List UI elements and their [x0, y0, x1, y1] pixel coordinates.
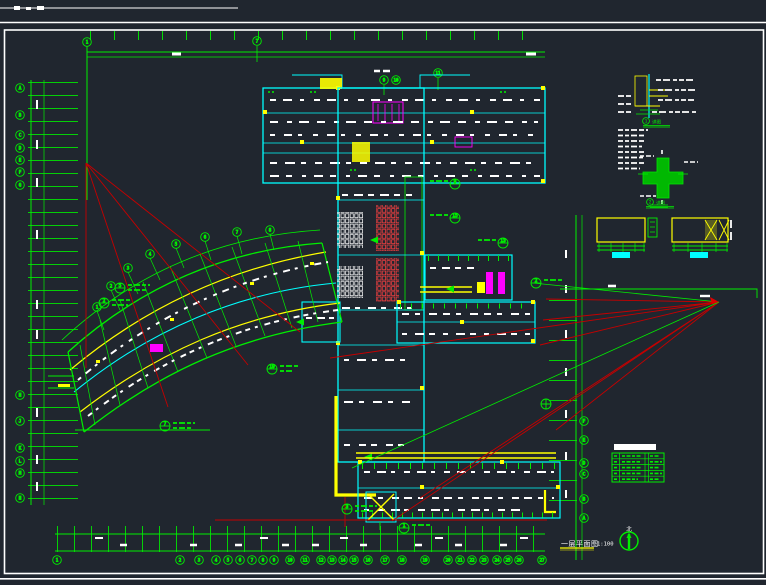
- svg-text:详图: 详图: [652, 119, 661, 126]
- plan-title: 一层平面图: [561, 540, 599, 548]
- svg-text:24: 24: [494, 558, 500, 563]
- svg-text:12: 12: [318, 558, 324, 563]
- svg-text:9: 9: [454, 179, 457, 185]
- svg-text:15: 15: [452, 213, 458, 219]
- svg-text:18: 18: [399, 558, 405, 563]
- svg-text:20: 20: [445, 558, 451, 563]
- svg-text:19: 19: [269, 364, 275, 370]
- svg-text:5: 5: [119, 283, 122, 289]
- svg-text:26: 26: [516, 558, 522, 563]
- svg-text:27: 27: [539, 558, 545, 563]
- svg-text:2: 2: [103, 298, 106, 304]
- svg-text:23: 23: [481, 558, 487, 563]
- svg-text:15: 15: [351, 558, 357, 563]
- svg-text:21: 21: [457, 558, 463, 563]
- svg-text:19: 19: [422, 558, 428, 563]
- cad-viewport[interactable]: 1 7 9 10 11 A B C D E F G H J K L M N 1: [0, 0, 766, 585]
- svg-text:17: 17: [382, 558, 388, 563]
- svg-text:3: 3: [346, 504, 349, 510]
- svg-text:16: 16: [365, 558, 371, 563]
- svg-text:22: 22: [469, 558, 475, 563]
- floor-plan-canvas: 1 7 9 10 11 A B C D E F G H J K L M N 1: [0, 0, 766, 585]
- svg-text:2: 2: [535, 278, 538, 284]
- svg-text:11: 11: [302, 558, 308, 563]
- svg-text:14: 14: [340, 558, 346, 563]
- table-title-bar: [614, 444, 656, 450]
- svg-text:10: 10: [287, 558, 293, 563]
- svg-text:13: 13: [500, 238, 506, 244]
- svg-text:1: 1: [645, 119, 648, 125]
- svg-text:详图: 详图: [656, 200, 665, 207]
- svg-text:7: 7: [164, 421, 167, 427]
- svg-text:1: 1: [403, 523, 406, 529]
- plan-scale: 1:100: [597, 542, 614, 548]
- svg-text:10: 10: [393, 78, 399, 83]
- svg-text:25: 25: [505, 558, 511, 563]
- svg-text:J: J: [19, 419, 22, 424]
- svg-text:13: 13: [329, 558, 335, 563]
